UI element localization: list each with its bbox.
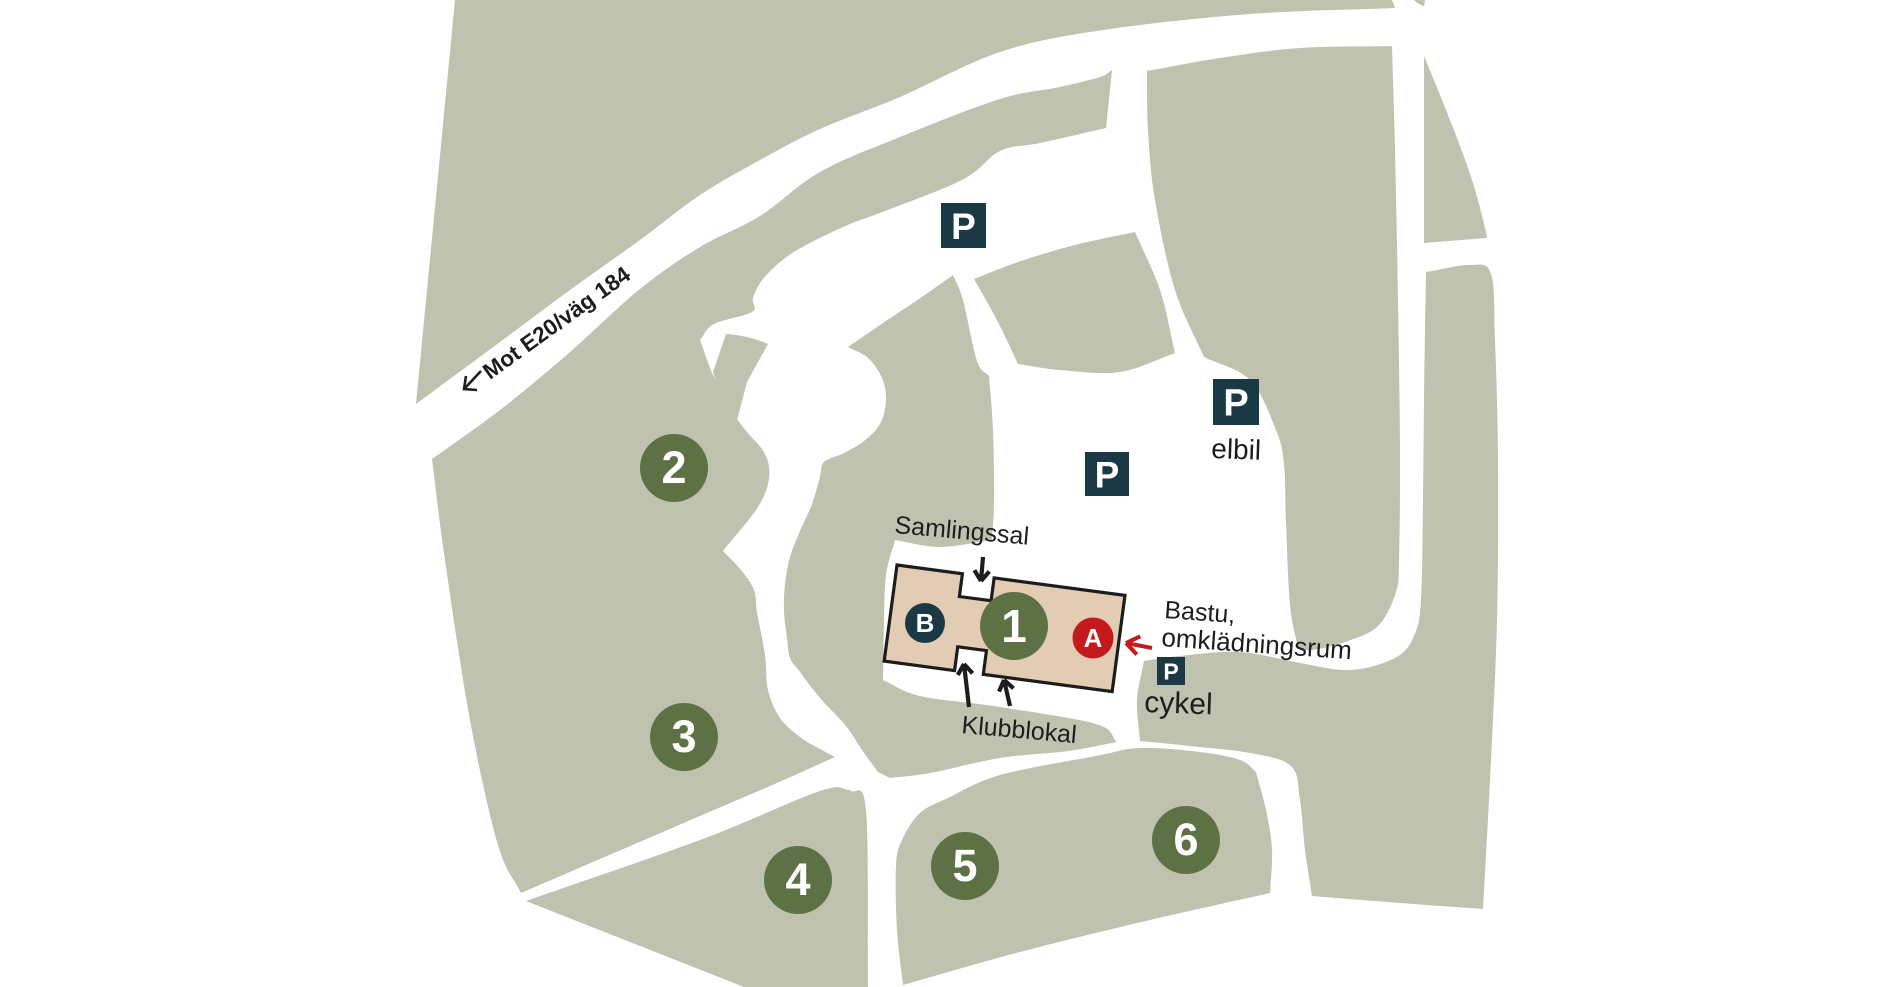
svg-text:P: P: [1223, 383, 1248, 425]
svg-text:P: P: [951, 206, 976, 247]
svg-text:1: 1: [1001, 600, 1027, 652]
svg-text:6: 6: [1173, 814, 1198, 865]
svg-text:elbil: elbil: [1211, 433, 1262, 466]
svg-text:P: P: [1163, 658, 1178, 684]
svg-text:3: 3: [671, 711, 696, 762]
svg-text:A: A: [1084, 623, 1103, 653]
svg-text:B: B: [916, 608, 935, 638]
svg-text:4: 4: [785, 854, 810, 905]
svg-text:5: 5: [952, 840, 977, 891]
svg-text:P: P: [1095, 454, 1120, 495]
svg-text:cykel: cykel: [1144, 686, 1213, 721]
svg-text:2: 2: [661, 442, 686, 493]
